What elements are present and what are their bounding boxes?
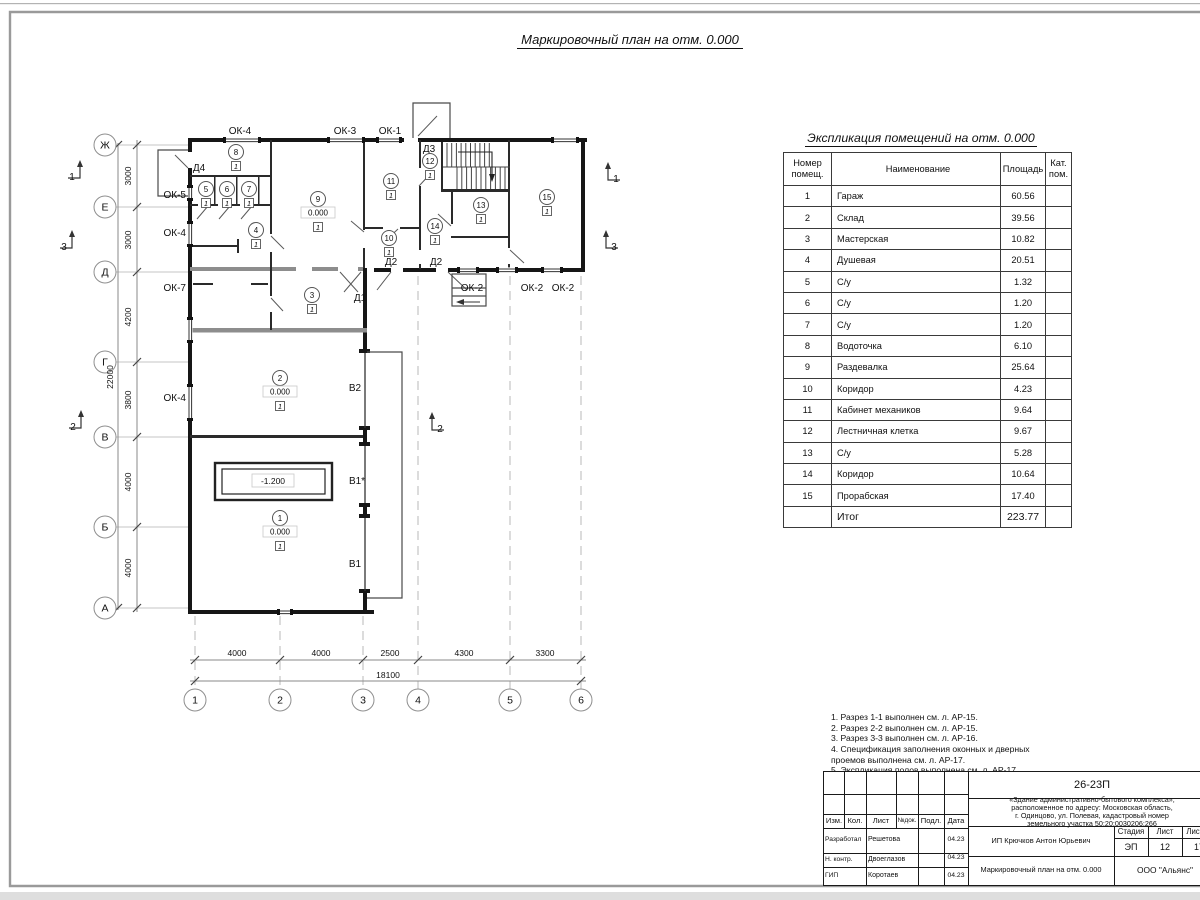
dim-bottom: 4300 bbox=[455, 648, 474, 658]
room-number: 8 bbox=[234, 148, 239, 157]
cell-num: 12 bbox=[784, 421, 832, 442]
room-number: 4 bbox=[254, 226, 259, 235]
cell-area: 39.56 bbox=[1001, 207, 1046, 228]
col-list: Лист bbox=[866, 814, 896, 828]
cell-cat bbox=[1046, 271, 1072, 292]
section-mark-arrow bbox=[78, 410, 84, 417]
organization-name: ООО "Альянс" bbox=[1114, 856, 1200, 885]
dim-left: 3000 bbox=[123, 230, 133, 249]
cell-area: 223.77 bbox=[1001, 506, 1046, 527]
explication-title: Экспликация помещений на отм. 0.000 bbox=[783, 131, 1059, 145]
cell-name: Прорабская bbox=[832, 485, 1001, 506]
cell-cat bbox=[1046, 207, 1072, 228]
dim-bottom: 2500 bbox=[381, 648, 400, 658]
dim-bottom: 4000 bbox=[228, 648, 247, 658]
dim-bottom: 3300 bbox=[536, 648, 555, 658]
section-mark-arrow bbox=[603, 230, 609, 237]
explication-row: 8Водоточка6.10 bbox=[784, 335, 1072, 356]
cell-name: Гараж bbox=[832, 186, 1001, 207]
cell-name: С/у bbox=[832, 271, 1001, 292]
viewer-edge bbox=[0, 3, 1200, 4]
name-ncontrol: Двоеглазов bbox=[868, 854, 918, 866]
title-block: 26-23П «Здание административно-бытового … bbox=[823, 771, 1200, 886]
col-izm: Изм. bbox=[824, 814, 844, 828]
stage-label: Стадия bbox=[1114, 826, 1148, 838]
explication-row: 6С/у1.20 bbox=[784, 292, 1072, 313]
cell-num: 6 bbox=[784, 292, 832, 313]
dim-left: 22000 bbox=[105, 365, 115, 389]
dim-left: 4000 bbox=[123, 472, 133, 491]
explication-row: 14Коридор10.64 bbox=[784, 464, 1072, 485]
dim-left: 3000 bbox=[123, 166, 133, 185]
floor-type-mark: 1 bbox=[428, 171, 432, 180]
role-ncontrol: Н. контр. bbox=[825, 854, 867, 866]
floor-type-mark: 1 bbox=[247, 199, 251, 208]
cell-area: 1.20 bbox=[1001, 292, 1046, 313]
level-value: 0.000 bbox=[270, 388, 291, 397]
floor-type-mark: 1 bbox=[316, 223, 320, 232]
explication-row: 5С/у1.32 bbox=[784, 271, 1072, 292]
section-mark-number: 3 bbox=[611, 242, 617, 253]
explication-row: 12Лестничная клетка9.67 bbox=[784, 421, 1072, 442]
level-value: 0.000 bbox=[308, 209, 329, 218]
cell-num: 9 bbox=[784, 357, 832, 378]
axis-row-label: Д bbox=[101, 267, 108, 279]
opening-label-В1: В1 bbox=[349, 559, 362, 570]
cell-num: 1 bbox=[784, 186, 832, 207]
section-mark-arrow bbox=[69, 230, 75, 237]
floor-type-mark: 1 bbox=[479, 215, 483, 224]
floor-type-mark: 1 bbox=[387, 248, 391, 257]
axis-col-label: 6 bbox=[578, 695, 584, 707]
cell-area: 10.64 bbox=[1001, 464, 1046, 485]
drawing-notes: 1. Разрез 1-1 выполнен см. л. АР-15. 2. … bbox=[831, 712, 1061, 776]
cell-cat bbox=[1046, 357, 1072, 378]
sheets-total: 17 bbox=[1182, 838, 1200, 856]
opening-label-Д1: Д1 bbox=[354, 293, 367, 304]
room-number: 15 bbox=[543, 193, 552, 202]
drawing-sheet: { "sheet": { "main_title": "Маркировочны… bbox=[0, 0, 1200, 900]
name-gip: Коротаев bbox=[868, 869, 918, 882]
axis-col-label: 2 bbox=[277, 695, 283, 707]
cell-cat bbox=[1046, 314, 1072, 335]
date-developer: 04.23 bbox=[944, 830, 968, 850]
date-ncontrol: 04.23 bbox=[944, 852, 968, 864]
axis-row-label: Б bbox=[102, 522, 109, 534]
bottom-band bbox=[0, 892, 1200, 900]
explication-row: 13С/у5.28 bbox=[784, 442, 1072, 463]
cell-name: Коридор bbox=[832, 378, 1001, 399]
cell-num: 10 bbox=[784, 378, 832, 399]
axis-col-label: 4 bbox=[415, 695, 421, 707]
col-podl: Подл. bbox=[918, 814, 944, 828]
cell-name: С/у bbox=[832, 442, 1001, 463]
date-gip: 04.23 bbox=[944, 869, 968, 882]
col-data: Дата bbox=[944, 814, 968, 828]
room-number: 14 bbox=[431, 222, 440, 231]
cell-area: 60.56 bbox=[1001, 186, 1046, 207]
opening-label-ОК-2: ОК-2 bbox=[552, 283, 575, 294]
explication-table: Номер помещ. Наименование Площадь Кат. п… bbox=[783, 152, 1072, 528]
floor-type-mark: 1 bbox=[225, 199, 229, 208]
axis-col-label: 3 bbox=[360, 695, 366, 707]
floor-type-mark: 1 bbox=[278, 542, 282, 551]
cell-name: Кабинет механиков bbox=[832, 399, 1001, 420]
project-description: «Здание административно-бытового комплек… bbox=[970, 798, 1200, 826]
dim-bottom: 4000 bbox=[312, 648, 331, 658]
col-header-category: Кат. пом. bbox=[1046, 153, 1072, 186]
cell-area: 9.67 bbox=[1001, 421, 1046, 442]
cell-num: 15 bbox=[784, 485, 832, 506]
room-number: 2 bbox=[278, 374, 283, 383]
explication-row: 4Душевая20.51 bbox=[784, 250, 1072, 271]
cell-name: Мастерская bbox=[832, 228, 1001, 249]
col-ndoc: №док. bbox=[896, 814, 918, 828]
sheet-title: Маркировочный план на отм. 0.000 bbox=[430, 32, 830, 47]
cell-num: 5 bbox=[784, 271, 832, 292]
role-gip: ГИП bbox=[825, 869, 867, 882]
cell-name: Склад bbox=[832, 207, 1001, 228]
cell-num: 3 bbox=[784, 228, 832, 249]
cell-num: 13 bbox=[784, 442, 832, 463]
room-number: 12 bbox=[426, 157, 435, 166]
floor-type-mark: 1 bbox=[433, 236, 437, 245]
col-header-name: Наименование bbox=[832, 153, 1001, 186]
cell-num: 4 bbox=[784, 250, 832, 271]
cell-num: 8 bbox=[784, 335, 832, 356]
col-header-area: Площадь bbox=[1001, 153, 1046, 186]
col-header-number: Номер помещ. bbox=[784, 153, 832, 186]
cell-name: Итог bbox=[832, 506, 1001, 527]
section-mark-arrow bbox=[429, 412, 435, 419]
plan-labels: ЖЕДГВБА123456300030004200380040004000220… bbox=[60, 126, 620, 711]
room-number: 7 bbox=[247, 185, 252, 194]
section-mark-number: 2 bbox=[437, 424, 443, 435]
role-developer: Разработал bbox=[825, 830, 867, 850]
cell-area: 20.51 bbox=[1001, 250, 1046, 271]
opening-label-ОК-7: ОК-7 bbox=[164, 283, 187, 294]
floor-type-mark: 1 bbox=[310, 305, 314, 314]
dim-left: 4200 bbox=[123, 307, 133, 326]
explication-row: 15Прорабская17.40 bbox=[784, 485, 1072, 506]
section-mark-arrow bbox=[77, 160, 83, 167]
dim-left: 3800 bbox=[123, 390, 133, 409]
cell-cat bbox=[1046, 506, 1072, 527]
room-number: 5 bbox=[204, 185, 209, 194]
cell-area: 6.10 bbox=[1001, 335, 1046, 356]
room-number: 3 bbox=[310, 291, 315, 300]
room-number: 1 bbox=[278, 514, 283, 523]
pit-level-value: -1.200 bbox=[261, 476, 285, 486]
room-number: 6 bbox=[225, 185, 230, 194]
cell-num bbox=[784, 506, 832, 527]
cell-name: Водоточка bbox=[832, 335, 1001, 356]
room-number: 9 bbox=[316, 195, 321, 204]
opening-label-ОК-3: ОК-3 bbox=[334, 126, 357, 137]
sheet-label: Лист bbox=[1148, 826, 1182, 838]
cell-area: 17.40 bbox=[1001, 485, 1046, 506]
cell-name: Коридор bbox=[832, 464, 1001, 485]
floor-type-mark: 1 bbox=[545, 207, 549, 216]
dim-bottom: 18100 bbox=[376, 670, 400, 680]
cell-cat bbox=[1046, 442, 1072, 463]
axis-row-label: В bbox=[101, 432, 108, 444]
axis-row-label: А bbox=[101, 603, 108, 615]
cell-num: 7 bbox=[784, 314, 832, 335]
axis-col-label: 1 bbox=[192, 695, 198, 707]
explication-total-row: Итог223.77 bbox=[784, 506, 1072, 527]
cell-area: 25.64 bbox=[1001, 357, 1046, 378]
stamp-drawing-title: Маркировочный план на отм. 0.000 bbox=[970, 856, 1112, 885]
cell-cat bbox=[1046, 228, 1072, 249]
opening-label-ОК-1: ОК-1 bbox=[379, 126, 402, 137]
stage-value: ЭП bbox=[1114, 838, 1148, 856]
section-mark-number: 2 bbox=[70, 422, 76, 433]
explication-row: 9Раздевалка25.64 bbox=[784, 357, 1072, 378]
opening-label-В1*: В1* bbox=[349, 476, 365, 487]
room-number: 13 bbox=[477, 201, 486, 210]
cell-cat bbox=[1046, 250, 1072, 271]
opening-label-В2: В2 bbox=[349, 383, 362, 394]
opening-label-Д2: Д2 bbox=[430, 257, 443, 268]
window-glyphs bbox=[187, 137, 579, 615]
level-value: 0.000 bbox=[270, 528, 291, 537]
client-name: ИП Крючков Антон Юрьевич bbox=[968, 826, 1114, 856]
cell-cat bbox=[1046, 421, 1072, 442]
floor-type-mark: 1 bbox=[389, 191, 393, 200]
floor-type-mark: 1 bbox=[278, 402, 282, 411]
axis-col-label: 5 bbox=[507, 695, 513, 707]
cell-area: 9.64 bbox=[1001, 399, 1046, 420]
cell-cat bbox=[1046, 378, 1072, 399]
cell-cat bbox=[1046, 399, 1072, 420]
cell-area: 1.32 bbox=[1001, 271, 1046, 292]
cell-name: Душевая bbox=[832, 250, 1001, 271]
floor-type-mark: 1 bbox=[234, 162, 238, 171]
explication-row: 11Кабинет механиков9.64 bbox=[784, 399, 1072, 420]
axis-row-label: Е bbox=[101, 202, 108, 214]
explication-row: 7С/у1.20 bbox=[784, 314, 1072, 335]
floor-type-mark: 1 bbox=[254, 240, 258, 249]
cell-cat bbox=[1046, 292, 1072, 313]
floor-type-mark: 1 bbox=[204, 199, 208, 208]
explication-header-row: Номер помещ. Наименование Площадь Кат. п… bbox=[784, 153, 1072, 186]
dim-left: 4000 bbox=[123, 558, 133, 577]
opening-label-Д4: Д4 bbox=[193, 163, 206, 174]
opening-label-ОК-4: ОК-4 bbox=[229, 126, 252, 137]
sheets-label: Листов bbox=[1182, 826, 1200, 838]
cell-num: 14 bbox=[784, 464, 832, 485]
cell-area: 10.82 bbox=[1001, 228, 1046, 249]
opening-label-ОК-5: ОК-5 bbox=[164, 190, 187, 201]
opening-label-ОК-4: ОК-4 bbox=[164, 393, 187, 404]
entry-arrow bbox=[456, 299, 464, 305]
section-mark-number: 3 bbox=[61, 242, 67, 253]
explication-row: 1Гараж60.56 bbox=[784, 186, 1072, 207]
cell-num: 2 bbox=[784, 207, 832, 228]
cell-cat bbox=[1046, 485, 1072, 506]
cell-num: 11 bbox=[784, 399, 832, 420]
stair-direction-arrow bbox=[489, 174, 495, 182]
cell-cat bbox=[1046, 464, 1072, 485]
cell-area: 5.28 bbox=[1001, 442, 1046, 463]
section-mark-number: 1 bbox=[69, 172, 75, 183]
explication-row: 2Склад39.56 bbox=[784, 207, 1072, 228]
axis-row-label: Ж bbox=[100, 140, 110, 152]
opening-label-ОК-2: ОК-2 bbox=[461, 283, 484, 294]
room-number: 10 bbox=[385, 234, 394, 243]
explication-row: 3Мастерская10.82 bbox=[784, 228, 1072, 249]
cell-name: С/у bbox=[832, 292, 1001, 313]
cell-area: 4.23 bbox=[1001, 378, 1046, 399]
col-kol: Кол. bbox=[844, 814, 866, 828]
room-number: 11 bbox=[387, 177, 396, 186]
section-mark-arrow bbox=[605, 162, 611, 169]
sheet-number: 12 bbox=[1148, 838, 1182, 856]
opening-label-ОК-2: ОК-2 bbox=[521, 283, 544, 294]
opening-label-Д2: Д2 bbox=[385, 257, 398, 268]
explication-row: 10Коридор4.23 bbox=[784, 378, 1072, 399]
cell-name: Раздевалка bbox=[832, 357, 1001, 378]
section-mark-number: 1 bbox=[613, 174, 619, 185]
name-developer: Решетова bbox=[868, 830, 918, 850]
cell-cat bbox=[1046, 186, 1072, 207]
cell-area: 1.20 bbox=[1001, 314, 1046, 335]
cell-name: С/у bbox=[832, 314, 1001, 335]
cell-name: Лестничная клетка bbox=[832, 421, 1001, 442]
opening-label-ОК-4: ОК-4 bbox=[164, 228, 187, 239]
cell-cat bbox=[1046, 335, 1072, 356]
